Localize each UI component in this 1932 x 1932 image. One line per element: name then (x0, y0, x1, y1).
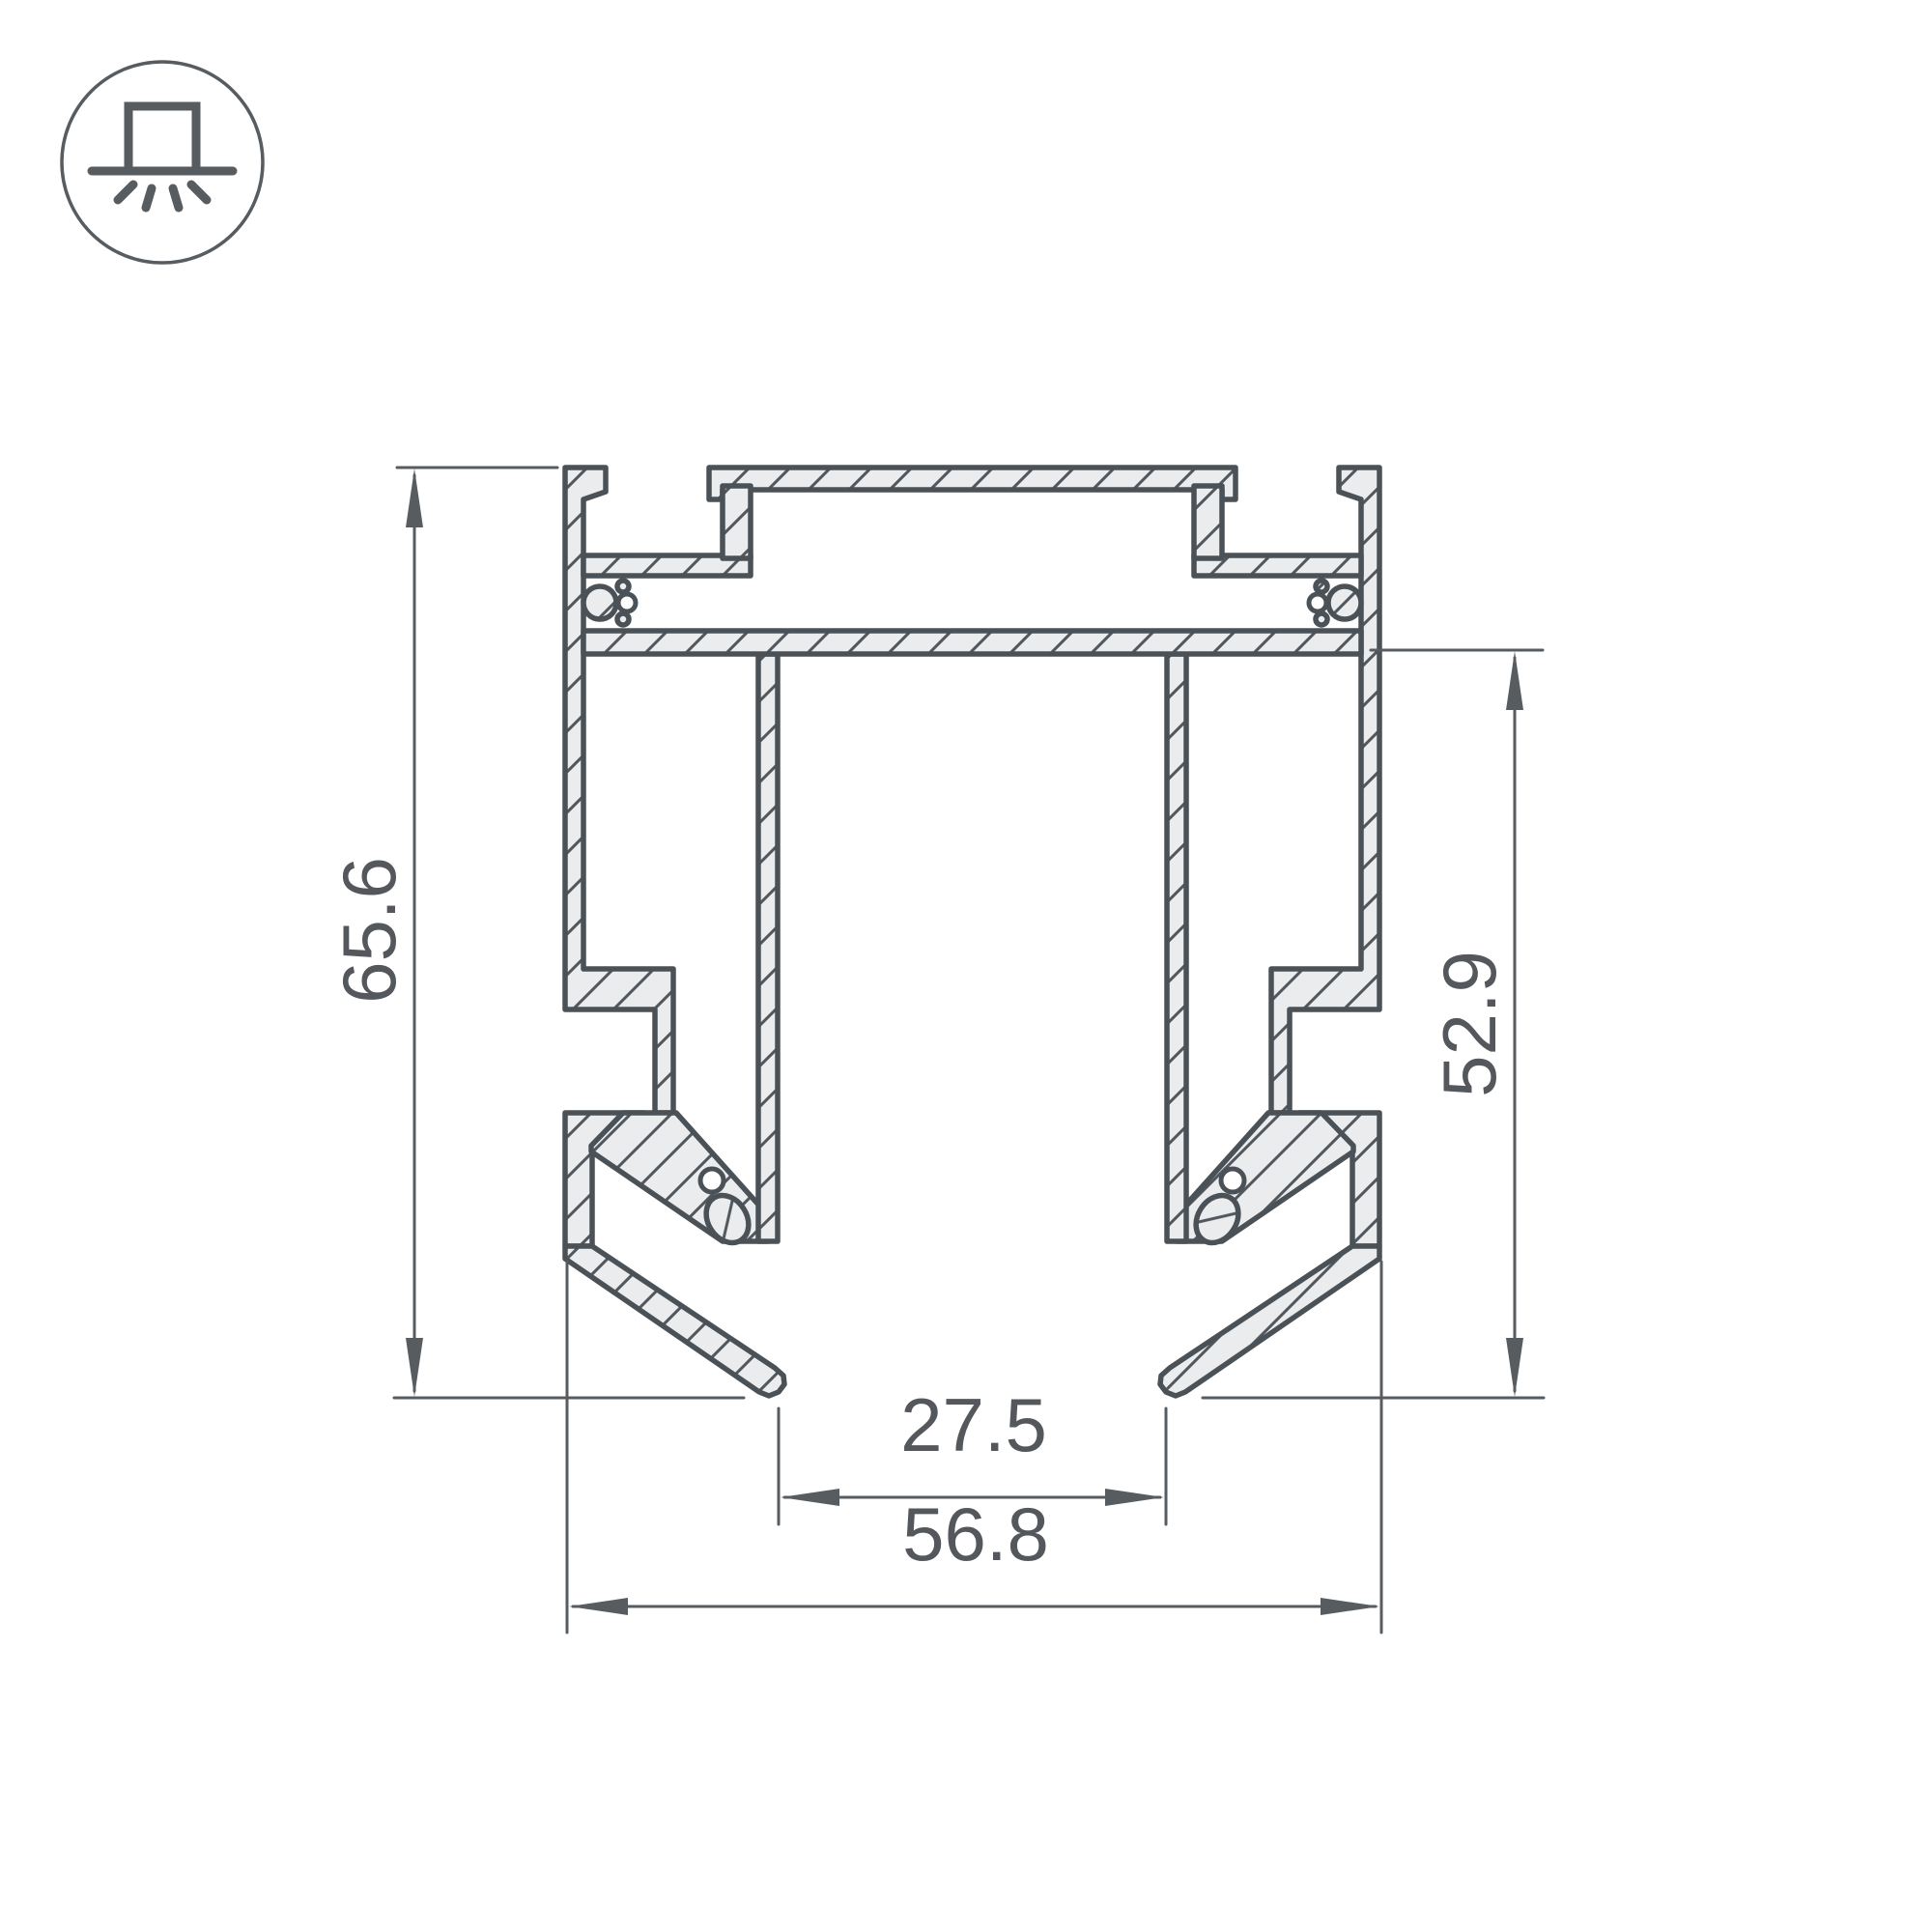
profile-boss-mouth-right (1309, 594, 1326, 611)
profile-middle-web (583, 631, 1361, 654)
profile-top-leg-left (723, 486, 751, 558)
profile-boss-mouth-left (618, 594, 636, 611)
profile-boss-lip-bottom-left (617, 613, 629, 625)
profile-cross-section (565, 468, 1379, 1396)
dimension-label-height-total: 65.6 (327, 857, 412, 1004)
profile-inner-web-right (1167, 654, 1186, 1241)
profile-screw-boss-left (583, 586, 616, 619)
dimension-height-total: 65.6 (327, 468, 744, 1398)
icon-light-rays (118, 185, 207, 208)
profile-boss-lip-bottom-right (1316, 613, 1327, 625)
surface-mounted-luminaire-icon (62, 62, 263, 263)
profile-hook-hole-left (700, 1169, 724, 1192)
dimension-label-side-height: 52.9 (1427, 951, 1512, 1097)
icon-circle (62, 62, 263, 263)
dimension-label-inner-width: 27.5 (900, 1382, 1047, 1467)
profile-screw-boss-right (1328, 586, 1361, 619)
profile-inner-web-left (758, 654, 778, 1241)
profile-hook-hole-right (1221, 1169, 1244, 1192)
profile-top-leg-right (1194, 486, 1222, 558)
dimension-label-outer-width: 56.8 (902, 1492, 1049, 1577)
technical-drawing-canvas: 65.6 52.9 27.5 56.8 (0, 0, 1932, 1932)
icon-fixture-box (128, 106, 196, 171)
profile-boss-lip-top-left (617, 581, 629, 592)
profile-bottom-flange-right (1160, 1246, 1379, 1396)
drawing-page: 65.6 52.9 27.5 56.8 (0, 0, 1932, 1932)
profile-top-plate (709, 468, 1236, 499)
profile-bottom-flange-left (565, 1246, 784, 1396)
profile-boss-lip-top-right (1316, 581, 1327, 592)
